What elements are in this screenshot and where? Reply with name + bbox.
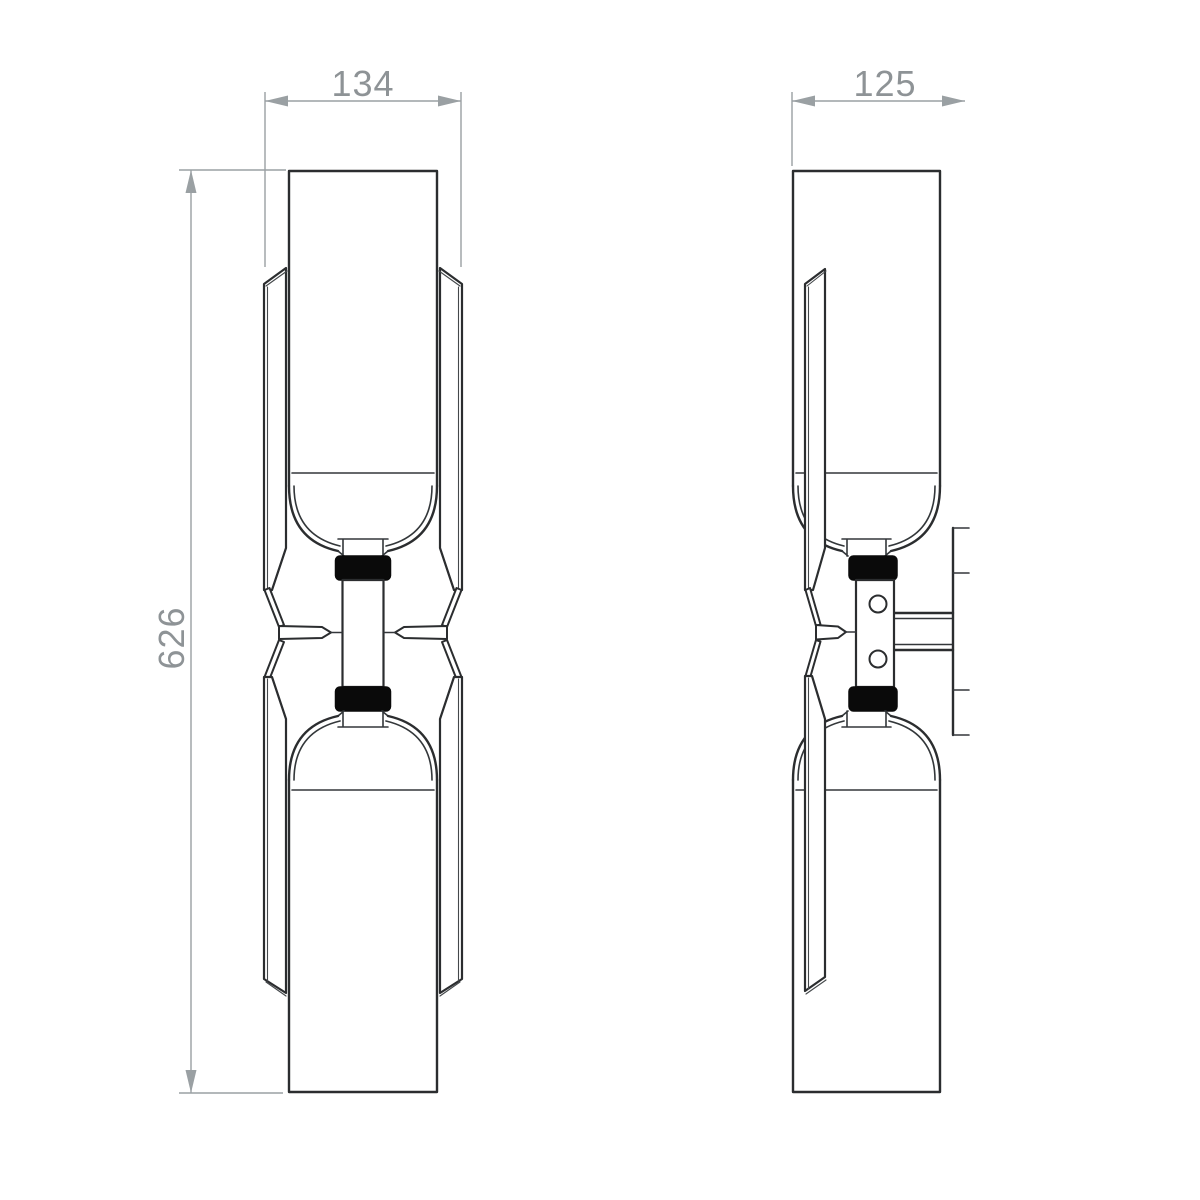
side-lower-collar (842, 711, 891, 727)
stem-screw-bottom (870, 651, 887, 668)
front-arm-right-lower-strut (442, 640, 462, 679)
front-arm-right-upper-strut (442, 588, 462, 627)
front-stem (343, 580, 384, 687)
front-arm-left-lower-strut (265, 640, 285, 679)
front-lower-collar (338, 711, 388, 727)
side-wall-bracket (894, 528, 969, 735)
front-upper-glass-inner-curve-right (386, 486, 432, 546)
front-arm-right (384, 268, 462, 996)
dim-depth-label: 125 (853, 63, 916, 104)
front-upper-collar (338, 539, 388, 556)
side-arm-finger (816, 625, 846, 640)
dim-width-arrow-right (438, 96, 461, 107)
front-upper-glass-outline (289, 171, 437, 486)
front-arm-right-finger (395, 626, 447, 639)
bracket-arm-inner-lines (894, 619, 953, 645)
front-upper-glass-curve-right (388, 486, 437, 551)
front-lower-glass-curve-left (289, 716, 338, 780)
front-lower-glass-shade (289, 716, 437, 1092)
front-lower-glass-outline (289, 780, 437, 1092)
wall-plate-ticks (953, 528, 969, 735)
front-arm-left-finger (279, 626, 331, 639)
side-lower-glass-inner-curve-right (889, 721, 935, 780)
front-socket-ring-upper (336, 556, 391, 580)
front-lower-glass-inner-curve-left (294, 721, 340, 780)
front-socket-ring-lower (336, 687, 391, 711)
side-upper-glass-inner-curve-right (889, 486, 935, 546)
sconce-technical-drawing: 134 626 125 (0, 0, 1200, 1200)
front-lower-glass-inner-curve-right (386, 721, 432, 780)
dimension-front-width: 134 (265, 63, 461, 267)
front-lower-glass-curve-right (388, 716, 437, 780)
dim-width-label: 134 (331, 63, 394, 104)
dim-width-extension-lines (265, 92, 461, 267)
side-socket-ring-lower (849, 687, 897, 711)
dimension-side-depth: 125 (792, 63, 965, 166)
drawing-canvas: 134 626 125 (0, 0, 1200, 1200)
side-arm-blade (805, 269, 856, 994)
side-upper-collar (842, 539, 891, 556)
front-view (264, 171, 462, 1092)
dim-height-label: 626 (151, 606, 192, 669)
side-socket-ring-upper (849, 556, 897, 580)
front-arm-left (264, 268, 342, 996)
side-arm-upper-strut (806, 588, 821, 626)
front-arm-left-upper-strut (265, 588, 285, 627)
dim-depth-arrow-right (942, 96, 965, 107)
dim-height-arrow-bottom (186, 1070, 197, 1093)
dim-depth-arrow-left (792, 96, 815, 107)
side-lower-glass-curve-right (891, 716, 940, 780)
side-arm-lower-strut (806, 640, 821, 678)
dim-height-arrow-top (186, 170, 197, 193)
front-upper-glass-inner-curve-left (294, 486, 340, 546)
stem-screw-top (870, 596, 887, 613)
side-view (793, 171, 969, 1092)
dim-width-arrow-left (265, 96, 288, 107)
front-upper-glass-curve-left (289, 486, 338, 551)
front-upper-glass-shade (289, 171, 437, 556)
side-upper-glass-curve-right (891, 486, 940, 551)
